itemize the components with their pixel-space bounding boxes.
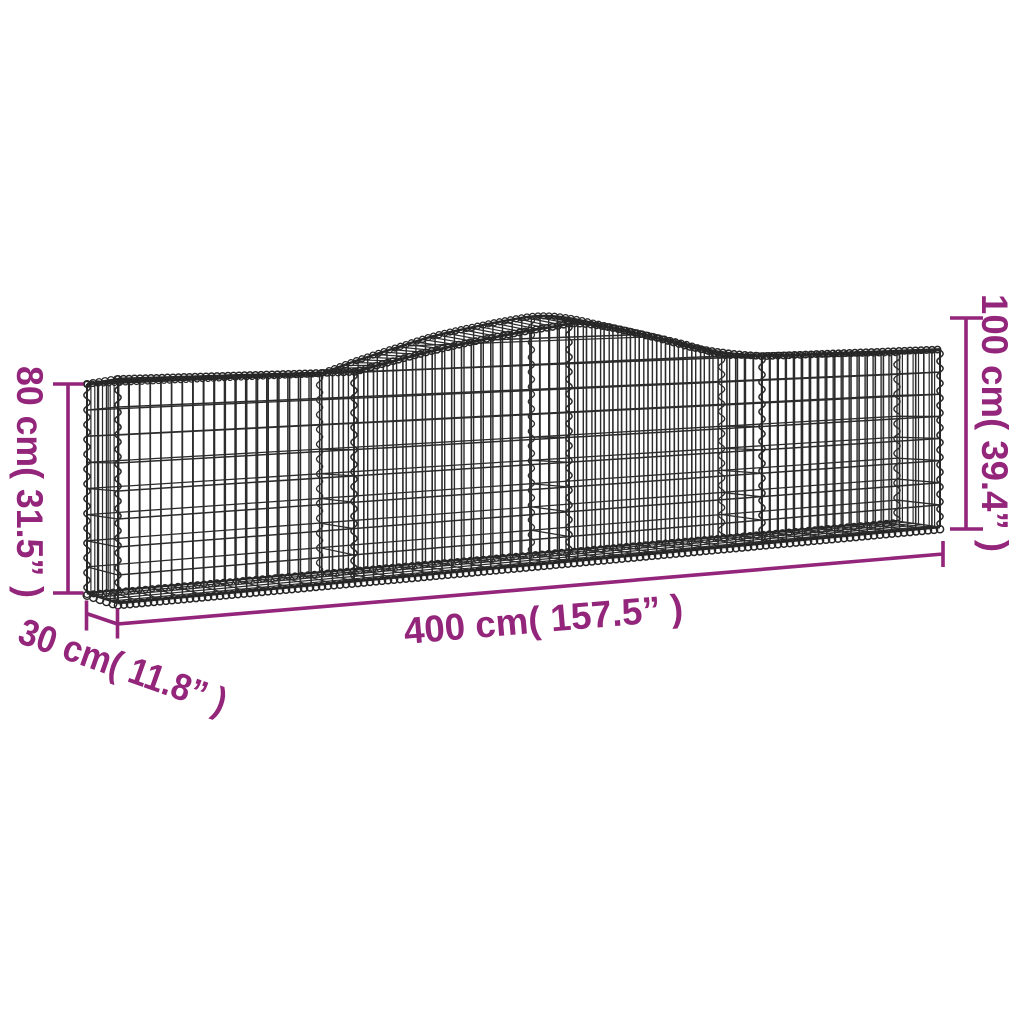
svg-text:100 cm( 39.4” ): 100 cm( 39.4” ) <box>974 294 1016 552</box>
svg-text:80 cm( 31.5” ): 80 cm( 31.5” ) <box>9 366 51 598</box>
